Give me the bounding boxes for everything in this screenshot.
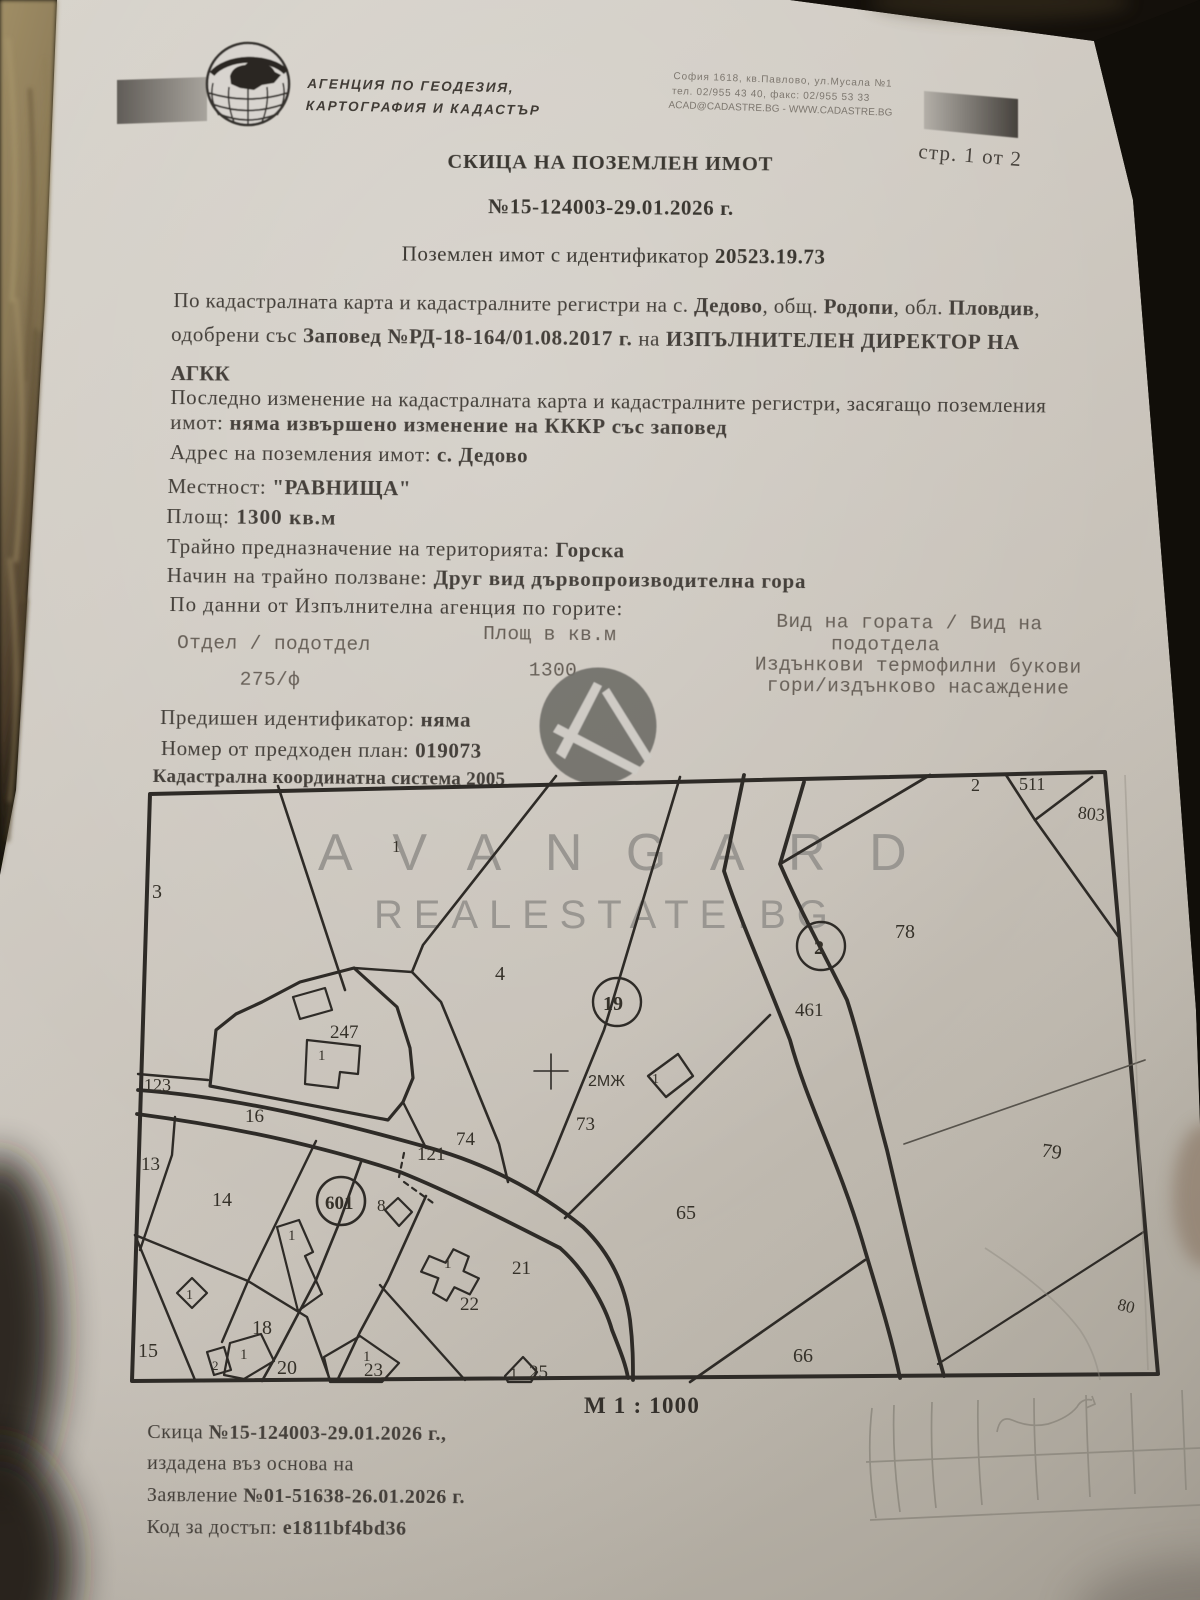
svg-text:601: 601 bbox=[325, 1193, 354, 1214]
svg-text:2: 2 bbox=[971, 775, 980, 795]
svg-text:Номер от предходен план: 01907: Номер от предходен план: 019073 bbox=[161, 736, 482, 763]
svg-text:1: 1 bbox=[240, 1347, 248, 1363]
svg-text:18: 18 bbox=[252, 1317, 272, 1339]
svg-text:25: 25 bbox=[529, 1362, 548, 1383]
svg-text:66: 66 bbox=[793, 1345, 813, 1367]
svg-text:№15-124003-29.01.2026 г.: №15-124003-29.01.2026 г. bbox=[488, 194, 734, 220]
svg-text:1: 1 bbox=[510, 1366, 518, 1382]
svg-text:1: 1 bbox=[318, 1048, 326, 1064]
svg-text:Предишен идентификатор: няма: Предишен идентификатор: няма bbox=[160, 705, 471, 732]
svg-text:Заявление №01-51638-26.01.2026: Заявление №01-51638-26.01.2026 г. bbox=[147, 1484, 465, 1508]
svg-text:1: 1 bbox=[444, 1256, 452, 1272]
svg-text:1: 1 bbox=[652, 1072, 659, 1087]
svg-text:16: 16 bbox=[245, 1106, 264, 1127]
svg-text:Местност: "РАВНИЩА": Местност: "РАВНИЩА" bbox=[168, 474, 412, 500]
svg-text:Отдел / подотдел: Отдел / подотдел bbox=[177, 632, 371, 656]
svg-text:2: 2 bbox=[212, 1358, 219, 1373]
svg-text:2: 2 bbox=[814, 937, 824, 959]
svg-text:4: 4 bbox=[495, 963, 505, 985]
svg-text:Площ: 1300 кв.м: Площ: 1300 кв.м bbox=[166, 504, 336, 530]
svg-text:3: 3 bbox=[152, 881, 162, 903]
svg-text:275/ф: 275/ф bbox=[240, 669, 301, 692]
svg-text:гори/издънково насаждение: гори/издънково насаждение bbox=[767, 675, 1070, 700]
svg-text:74: 74 bbox=[456, 1129, 476, 1150]
svg-text:М 1 : 1000: М 1 : 1000 bbox=[584, 1393, 700, 1418]
svg-text:Скица №15-124003-29.01.2026 г.: Скица №15-124003-29.01.2026 г., bbox=[147, 1421, 446, 1445]
svg-text:Трайно предназначение на терит: Трайно предназначение на територията: Го… bbox=[167, 534, 625, 562]
svg-text:23: 23 bbox=[364, 1360, 383, 1381]
svg-text:20: 20 bbox=[277, 1357, 297, 1379]
svg-text:1: 1 bbox=[186, 1288, 193, 1303]
svg-text:подотдела: подотдела bbox=[831, 633, 940, 656]
svg-text:19: 19 bbox=[603, 993, 623, 1015]
svg-text:8: 8 bbox=[377, 1196, 386, 1215]
svg-text:121: 121 bbox=[417, 1144, 446, 1165]
svg-text:15: 15 bbox=[138, 1340, 158, 1362]
svg-text:78: 78 bbox=[895, 921, 915, 943]
svg-text:21: 21 bbox=[512, 1258, 531, 1279]
svg-text:1: 1 bbox=[392, 837, 401, 856]
svg-text:2МЖ: 2МЖ bbox=[588, 1073, 625, 1090]
svg-text:АГКК: АГКК bbox=[171, 361, 231, 386]
svg-text:СКИЦА НА ПОЗЕМЛЕН ИМОТ: СКИЦА НА ПОЗЕМЛЕН ИМОТ bbox=[447, 151, 773, 176]
svg-text:803: 803 bbox=[1077, 802, 1106, 825]
svg-text:14: 14 bbox=[212, 1189, 232, 1211]
svg-text:511: 511 bbox=[1019, 774, 1045, 794]
svg-text:65: 65 bbox=[676, 1202, 696, 1224]
svg-text:Код за достъп: e1811bf4bd36: Код за достъп: e1811bf4bd36 bbox=[147, 1516, 407, 1540]
svg-text:Вид на гората / Вид на: Вид на гората / Вид на bbox=[776, 611, 1042, 636]
svg-text:461: 461 bbox=[795, 1000, 824, 1021]
svg-text:REALESTATE.BG: REALESTATE.BG bbox=[374, 893, 839, 937]
svg-text:73: 73 bbox=[576, 1114, 595, 1135]
svg-text:22: 22 bbox=[460, 1294, 479, 1315]
svg-text:По данни от Изпълнителна агенц: По данни от Изпълнителна агенция по гори… bbox=[169, 592, 623, 620]
svg-text:Площ в кв.м: Площ в кв.м bbox=[483, 623, 616, 646]
svg-text:13: 13 bbox=[141, 1154, 160, 1175]
svg-text:Поземлен имот с идентификатор: Поземлен имот с идентификатор 20523.19.7… bbox=[402, 241, 826, 268]
svg-text:79: 79 bbox=[1040, 1140, 1063, 1165]
svg-text:издадена въз основа на: издадена въз основа на bbox=[147, 1452, 354, 1475]
svg-text:1: 1 bbox=[288, 1228, 296, 1244]
svg-text:247: 247 bbox=[330, 1022, 359, 1043]
svg-text:123: 123 bbox=[144, 1075, 171, 1095]
svg-text:Адрес на поземления имот: с. Д: Адрес на поземления имот: с. Дедово bbox=[170, 440, 529, 467]
svg-text:AVANGARD: AVANGARD bbox=[318, 824, 950, 882]
